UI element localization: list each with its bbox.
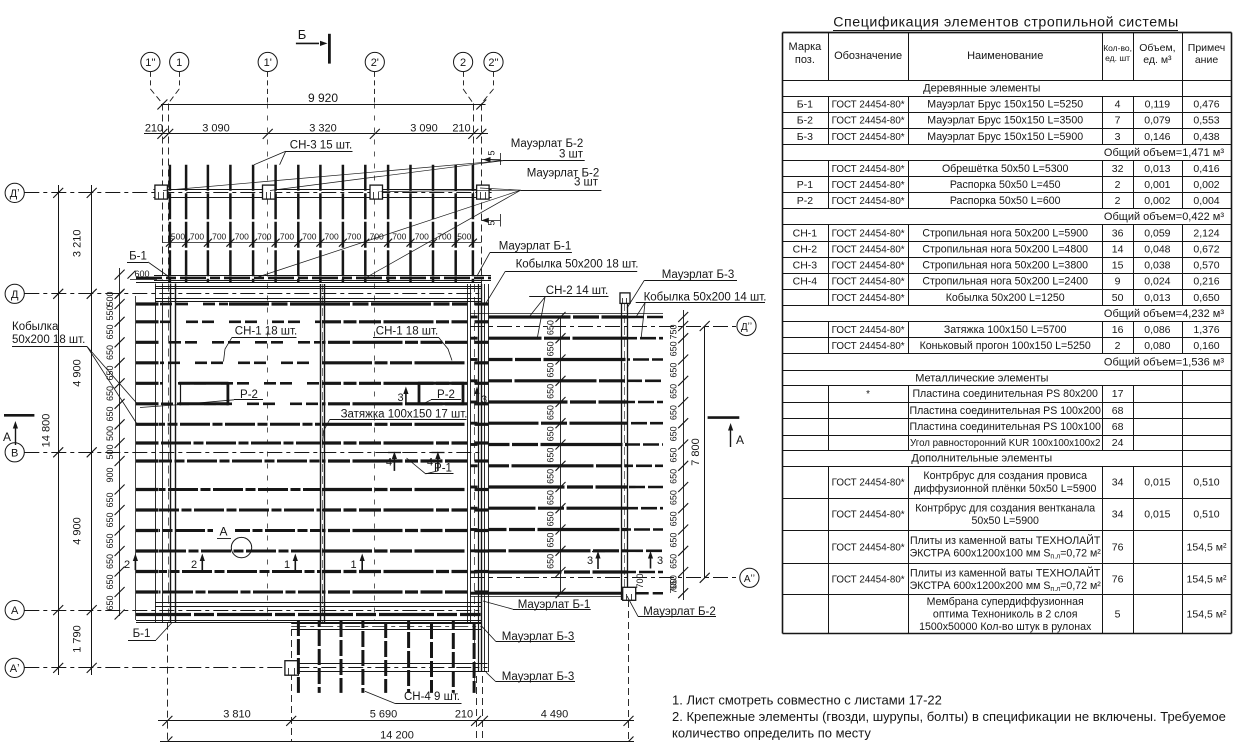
svg-text:Мауэрлат Брус 150x150 L=5250: Мауэрлат Брус 150x150 L=5250: [927, 99, 1083, 111]
svg-text:Примеч: Примеч: [1188, 42, 1225, 54]
svg-text:3: 3: [657, 555, 663, 567]
svg-text:Контрбрус для создания провиса: Контрбрус для создания провиса: [923, 470, 1087, 482]
svg-text:2: 2: [191, 559, 197, 571]
svg-text:Дʼ: Дʼ: [10, 188, 20, 200]
svg-text:700: 700: [347, 232, 361, 242]
svg-text:ГОСТ 24454-80*: ГОСТ 24454-80*: [832, 341, 905, 352]
svg-text:0,013: 0,013: [1144, 292, 1170, 304]
svg-text:650: 650: [105, 533, 115, 548]
svg-text:Р-1: Р-1: [797, 179, 814, 191]
svg-text:А: А: [3, 430, 11, 444]
svg-text:0,416: 0,416: [1193, 163, 1219, 175]
svg-text:0,146: 0,146: [1144, 131, 1170, 143]
svg-text:Кол-во,: Кол-во,: [1103, 43, 1132, 53]
svg-text:650: 650: [669, 448, 679, 463]
svg-text:154,5 м²: 154,5 м²: [1187, 541, 1227, 553]
svg-text:9: 9: [1115, 276, 1121, 288]
svg-text:650: 650: [669, 469, 679, 484]
svg-text:Аʼ: Аʼ: [10, 663, 20, 675]
svg-text:210: 210: [455, 709, 473, 721]
svg-text:Мауэрлат Б-3: Мауэрлат Б-3: [662, 269, 735, 281]
svg-text:Обозначение: Обозначение: [834, 50, 902, 62]
svg-text:ГОСТ 24454-80*: ГОСТ 24454-80*: [832, 245, 905, 256]
svg-text:3 090: 3 090: [202, 123, 230, 135]
svg-text:0,476: 0,476: [1193, 99, 1219, 111]
svg-text:Пластина соединительная PS 100: Пластина соединительная PS 100x200: [909, 405, 1100, 417]
svg-text:650: 650: [105, 345, 115, 360]
svg-text:Р-2: Р-2: [437, 389, 455, 401]
svg-text:0,216: 0,216: [1193, 276, 1219, 288]
svg-text:СН-1: СН-1: [793, 227, 818, 239]
svg-text:14: 14: [1112, 244, 1124, 256]
svg-text:А: А: [11, 605, 19, 617]
svg-text:1: 1: [176, 57, 182, 69]
svg-text:154,5 м²: 154,5 м²: [1187, 608, 1227, 620]
svg-text:Мембрана супердиффузионная: Мембрана супердиффузионная: [927, 596, 1084, 608]
svg-text:СН-2: СН-2: [793, 244, 818, 256]
svg-text:2. Крепежные элементы (гвозди,: 2. Крепежные элементы (гвозди, шурупы, б…: [672, 709, 1226, 724]
svg-text:650: 650: [105, 512, 115, 527]
svg-text:700: 700: [190, 232, 204, 242]
svg-text:3 810: 3 810: [223, 709, 251, 721]
svg-text:750: 750: [669, 324, 679, 339]
svg-text:700: 700: [257, 232, 271, 242]
svg-text:650: 650: [669, 511, 679, 526]
svg-text:Стропильная нога 50x200 L=4800: Стропильная нога 50x200 L=4800: [922, 244, 1088, 256]
svg-text:700: 700: [325, 232, 339, 242]
svg-text:650: 650: [546, 533, 556, 548]
svg-text:Марка: Марка: [789, 41, 823, 53]
svg-text:2': 2': [371, 57, 379, 69]
svg-text:ГОСТ 24454-80*: ГОСТ 24454-80*: [832, 132, 905, 143]
svg-text:2: 2: [1115, 195, 1121, 207]
svg-text:Коньковый прогон 100x150 L=525: Коньковый прогон 100x150 L=5250: [920, 340, 1091, 352]
svg-text:0,004: 0,004: [1193, 195, 1219, 207]
svg-text:650: 650: [546, 448, 556, 463]
svg-text:3 шт: 3 шт: [574, 177, 599, 189]
svg-text:5: 5: [1115, 608, 1121, 620]
svg-text:0,015: 0,015: [1144, 509, 1170, 521]
svg-text:Общий объем=1,536 м³: Общий объем=1,536 м³: [1104, 357, 1224, 369]
svg-text:3: 3: [1115, 131, 1121, 143]
svg-text:1'': 1'': [145, 57, 155, 69]
svg-text:Деревянные элементы: Деревянные элементы: [923, 82, 1040, 94]
svg-text:5 690: 5 690: [370, 709, 398, 721]
svg-text:3: 3: [481, 394, 487, 406]
svg-text:А: А: [219, 525, 227, 539]
svg-text:50x50 L=5900: 50x50 L=5900: [971, 515, 1039, 527]
svg-text:0,672: 0,672: [1193, 244, 1219, 256]
svg-text:15: 15: [1112, 260, 1124, 272]
svg-text:34: 34: [1112, 477, 1124, 489]
svg-text:2: 2: [1115, 340, 1121, 352]
svg-text:650: 650: [669, 426, 679, 441]
svg-text:1: 1: [284, 559, 290, 571]
svg-text:1': 1': [264, 57, 272, 69]
svg-text:1500x50000 Кол-во штук в рулон: 1500x50000 Кол-во штук в рулонах: [919, 621, 1092, 633]
svg-text:Объем,: Объем,: [1139, 42, 1175, 54]
svg-text:50x200 18 шт.: 50x200 18 шт.: [12, 334, 85, 346]
svg-text:Б-1: Б-1: [129, 251, 147, 263]
svg-text:1,376: 1,376: [1193, 324, 1219, 336]
svg-text:4 900: 4 900: [72, 517, 84, 545]
svg-text:СН-4: СН-4: [793, 276, 818, 288]
svg-text:700: 700: [635, 573, 645, 588]
svg-text:4: 4: [1115, 99, 1121, 111]
svg-text:14 200: 14 200: [380, 730, 414, 742]
svg-text:600: 600: [134, 269, 149, 279]
svg-text:0,510: 0,510: [1193, 509, 1219, 521]
svg-text:СН-3: СН-3: [793, 260, 818, 272]
svg-text:ГОСТ 24454-80*: ГОСТ 24454-80*: [832, 293, 905, 304]
svg-text:0,080: 0,080: [1144, 340, 1170, 352]
svg-text:700: 700: [370, 232, 384, 242]
svg-text:650: 650: [546, 554, 556, 569]
svg-text:Кобылка: Кобылка: [12, 321, 59, 333]
svg-text:Общий объем=0,422 м³: Общий объем=0,422 м³: [1104, 211, 1224, 223]
svg-text:4: 4: [386, 457, 392, 469]
svg-text:Контрбрус для создания венткан: Контрбрус для создания вентканала: [915, 502, 1095, 514]
svg-text:Кобылка 50x200 14 шт.: Кобылка 50x200 14 шт.: [644, 291, 767, 303]
svg-text:650: 650: [669, 490, 679, 505]
svg-text:Спецификация элементов стропил: Спецификация элементов стропильной систе…: [833, 15, 1178, 31]
svg-text:900: 900: [105, 467, 115, 482]
svg-text:0,038: 0,038: [1144, 260, 1170, 272]
svg-text:ГОСТ 24454-80*: ГОСТ 24454-80*: [832, 277, 905, 288]
svg-text:Плиты из каменной ваты ТЕХНОЛА: Плиты из каменной ваты ТЕХНОЛАЙТ: [910, 566, 1101, 579]
svg-text:ГОСТ 24454-80*: ГОСТ 24454-80*: [832, 100, 905, 111]
svg-text:Стропильная нога 50x200 L=5900: Стропильная нога 50x200 L=5900: [922, 227, 1088, 239]
svg-text:Стропильная нога 50x200 L=2400: Стропильная нога 50x200 L=2400: [922, 276, 1088, 288]
svg-text:Угол равносторонний KUR 100x10: Угол равносторонний KUR 100x100x100x2: [910, 438, 1100, 449]
svg-text:16: 16: [1112, 324, 1124, 336]
svg-text:А: А: [736, 433, 744, 447]
svg-text:68: 68: [1112, 421, 1124, 433]
svg-text:ГОСТ 24454-80*: ГОСТ 24454-80*: [832, 164, 905, 175]
svg-text:0,015: 0,015: [1144, 477, 1170, 489]
svg-text:Кобылка 50x200 18 шт.: Кобылка 50x200 18 шт.: [516, 258, 639, 270]
svg-text:Б-2: Б-2: [797, 115, 813, 127]
svg-text:Р-1: Р-1: [434, 463, 452, 475]
svg-text:ГОСТ 24454-80*: ГОСТ 24454-80*: [832, 478, 905, 489]
svg-text:5: 5: [487, 150, 497, 155]
svg-text:650: 650: [546, 320, 556, 335]
svg-text:СН-1 18 шт.: СН-1 18 шт.: [235, 326, 297, 338]
svg-text:650: 650: [546, 363, 556, 378]
svg-text:Мауэрлат Брус 150x150 L=5900: Мауэрлат Брус 150x150 L=5900: [927, 131, 1083, 143]
svg-text:7 800: 7 800: [690, 438, 702, 466]
svg-text:650: 650: [669, 405, 679, 420]
svg-text:0,001: 0,001: [1144, 179, 1170, 191]
svg-text:9 920: 9 920: [308, 91, 338, 105]
svg-text:0,048: 0,048: [1144, 244, 1170, 256]
svg-text:2: 2: [460, 57, 466, 69]
svg-text:3 090: 3 090: [410, 123, 438, 135]
svg-text:154,5 м²: 154,5 м²: [1187, 574, 1227, 586]
svg-text:Пластина соединительная PS 100: Пластина соединительная PS 100x100: [909, 421, 1100, 433]
svg-text:34: 34: [1112, 509, 1124, 521]
svg-text:Общий объем=4,232 м³: Общий объем=4,232 м³: [1104, 308, 1224, 320]
svg-text:ГОСТ 24454-80*: ГОСТ 24454-80*: [832, 575, 905, 586]
svg-text:700: 700: [235, 232, 249, 242]
svg-text:Дополнительные элементы: Дополнительные элементы: [911, 453, 1052, 465]
svg-text:76: 76: [1112, 574, 1124, 586]
svg-text:ГОСТ 24454-80*: ГОСТ 24454-80*: [832, 542, 905, 553]
svg-text:500: 500: [105, 426, 115, 441]
svg-text:650: 650: [105, 492, 115, 507]
svg-text:700: 700: [415, 232, 429, 242]
svg-text:650: 650: [546, 469, 556, 484]
svg-text:СН-2 14 шт.: СН-2 14 шт.: [546, 285, 608, 297]
svg-text:700: 700: [280, 232, 294, 242]
svg-text:ЭКСТРА 600x1200x100 мм Sп.л=0,: ЭКСТРА 600x1200x100 мм Sп.л=0,72 м²: [910, 548, 1102, 561]
svg-text:ГОСТ 24454-80*: ГОСТ 24454-80*: [832, 261, 905, 272]
svg-text:*: *: [866, 389, 870, 400]
svg-text:Кобылка 50x200 L=1250: Кобылка 50x200 L=1250: [946, 292, 1065, 304]
svg-text:Общий объем=1,471 м³: Общий объем=1,471 м³: [1104, 147, 1224, 159]
svg-text:36: 36: [1112, 227, 1124, 239]
svg-text:700: 700: [392, 232, 406, 242]
svg-text:Затяжка 100x150 L=5700: Затяжка 100x150 L=5700: [944, 324, 1067, 336]
svg-text:Д: Д: [11, 289, 19, 301]
svg-text:Наименование: Наименование: [967, 50, 1043, 62]
svg-text:ГОСТ 24454-80*: ГОСТ 24454-80*: [832, 196, 905, 207]
svg-text:ГОСТ 24454-80*: ГОСТ 24454-80*: [832, 180, 905, 191]
svg-text:0,013: 0,013: [1144, 163, 1170, 175]
svg-text:Обрешётка 50x50 L=5300: Обрешётка 50x50 L=5300: [942, 163, 1069, 175]
svg-text:0,079: 0,079: [1144, 115, 1170, 127]
svg-text:500: 500: [457, 232, 471, 242]
svg-text:4 490: 4 490: [541, 709, 569, 721]
svg-text:ЭКСТРА 600x1200x200 мм Sп.л=0,: ЭКСТРА 600x1200x200 мм Sп.л=0,72 м²: [910, 580, 1102, 593]
svg-text:ГОСТ 24454-80*: ГОСТ 24454-80*: [832, 116, 905, 127]
svg-text:650: 650: [105, 595, 115, 610]
svg-text:650: 650: [546, 511, 556, 526]
svg-text:ед. шт: ед. шт: [1105, 53, 1130, 63]
svg-text:0,086: 0,086: [1144, 324, 1170, 336]
svg-text:В: В: [11, 447, 18, 459]
svg-text:Б: Б: [298, 27, 307, 42]
svg-text:0,160: 0,160: [1193, 340, 1219, 352]
svg-text:550: 550: [105, 305, 115, 320]
svg-text:диффузионной плёнки 50x50 L=59: диффузионной плёнки 50x50 L=5900: [914, 483, 1097, 495]
svg-text:Мауэрлат Б-1: Мауэрлат Б-1: [499, 240, 572, 252]
svg-text:2: 2: [1115, 179, 1121, 191]
svg-text:32: 32: [1112, 163, 1124, 175]
svg-text:СН-1 18 шт.: СН-1 18 шт.: [376, 326, 438, 338]
svg-text:Аʼʼ: Аʼʼ: [744, 574, 755, 585]
svg-text:Распорка 50x50 L=600: Распорка 50x50 L=600: [950, 195, 1061, 207]
svg-text:Р-2: Р-2: [797, 195, 814, 207]
svg-text:210: 210: [145, 123, 163, 135]
svg-text:1 790: 1 790: [72, 625, 84, 653]
svg-text:650: 650: [669, 384, 679, 399]
svg-text:3 шт: 3 шт: [559, 148, 584, 160]
svg-text:0,553: 0,553: [1193, 115, 1219, 127]
svg-text:поз.: поз.: [795, 54, 815, 66]
svg-text:650: 650: [669, 341, 679, 356]
svg-text:Пластина соединительная PS 80x: Пластина соединительная PS 80x200: [912, 388, 1098, 400]
svg-text:Затяжка 100x150 17 шт.: Затяжка 100x150 17 шт.: [341, 409, 468, 421]
svg-text:0,570: 0,570: [1193, 260, 1219, 272]
svg-text:Распорка 50x50 L=450: Распорка 50x50 L=450: [950, 179, 1061, 191]
svg-text:3 320: 3 320: [309, 123, 337, 135]
svg-text:2'': 2'': [488, 57, 498, 69]
svg-text:14 800: 14 800: [41, 414, 53, 448]
svg-text:Плиты из каменной ваты ТЕХНОЛА: Плиты из каменной ваты ТЕХНОЛАЙТ: [910, 534, 1101, 547]
svg-text:500: 500: [171, 232, 185, 242]
svg-text:0,002: 0,002: [1193, 179, 1219, 191]
svg-text:Р-2: Р-2: [240, 389, 258, 401]
svg-text:оптима Технониколь в 2 слоя: оптима Технониколь в 2 слоя: [933, 608, 1078, 620]
svg-text:210: 210: [452, 123, 470, 135]
svg-text:3: 3: [397, 392, 403, 404]
svg-text:650: 650: [669, 554, 679, 569]
svg-text:Мауэрлат Брус 150x150 L=3500: Мауэрлат Брус 150x150 L=3500: [927, 115, 1083, 127]
svg-text:700: 700: [212, 232, 226, 242]
svg-text:700: 700: [669, 578, 679, 593]
svg-text:3 210: 3 210: [72, 230, 84, 258]
svg-text:0,002: 0,002: [1144, 195, 1170, 207]
svg-text:0,119: 0,119: [1145, 99, 1171, 111]
svg-text:0,059: 0,059: [1144, 227, 1170, 239]
svg-text:650: 650: [669, 533, 679, 548]
svg-text:1. Лист смотреть совместно с л: 1. Лист смотреть совместно с листами 17-…: [672, 693, 942, 708]
svg-text:0,024: 0,024: [1144, 276, 1170, 288]
svg-text:50: 50: [1112, 292, 1124, 304]
svg-text:СН-3 15 шт.: СН-3 15 шт.: [290, 140, 352, 152]
svg-text:Стропильная нога 50x200 L=3800: Стропильная нога 50x200 L=3800: [922, 260, 1088, 272]
svg-text:2,124: 2,124: [1193, 227, 1219, 239]
svg-text:24: 24: [1112, 437, 1124, 449]
svg-text:650: 650: [105, 554, 115, 569]
svg-text:ед. м³: ед. м³: [1143, 54, 1172, 66]
svg-text:2: 2: [124, 559, 130, 571]
svg-text:68: 68: [1112, 405, 1124, 417]
svg-text:500: 500: [105, 444, 115, 459]
svg-text:650: 650: [105, 324, 115, 339]
svg-text:700: 700: [302, 232, 316, 242]
svg-text:Металлические элементы: Металлические элементы: [915, 372, 1048, 384]
svg-text:650: 650: [105, 574, 115, 589]
svg-text:0,438: 0,438: [1193, 131, 1219, 143]
svg-text:4: 4: [427, 457, 433, 469]
svg-text:ГОСТ 24454-80*: ГОСТ 24454-80*: [832, 325, 905, 336]
svg-text:СН-4 9 шт.: СН-4 9 шт.: [404, 691, 460, 703]
svg-text:7: 7: [1115, 115, 1121, 127]
svg-text:Дʼʼ: Дʼʼ: [741, 322, 752, 333]
svg-text:0,650: 0,650: [1193, 292, 1219, 304]
svg-text:650: 650: [546, 384, 556, 399]
svg-text:Б-1: Б-1: [133, 628, 151, 640]
svg-text:ГОСТ 24454-80*: ГОСТ 24454-80*: [832, 510, 905, 521]
svg-text:650: 650: [546, 490, 556, 505]
svg-text:650: 650: [546, 341, 556, 356]
svg-text:Б-3: Б-3: [797, 131, 813, 143]
svg-text:0,510: 0,510: [1193, 477, 1219, 489]
svg-text:650: 650: [546, 426, 556, 441]
svg-text:ГОСТ 24454-80*: ГОСТ 24454-80*: [832, 228, 905, 239]
svg-text:650: 650: [669, 363, 679, 378]
svg-text:3: 3: [587, 555, 593, 567]
svg-text:17: 17: [1112, 388, 1124, 400]
svg-text:4 900: 4 900: [72, 359, 84, 387]
svg-text:Б-1: Б-1: [797, 99, 813, 111]
svg-text:количество определить по месту: количество определить по месту: [672, 726, 871, 741]
svg-text:1: 1: [350, 559, 356, 571]
svg-text:650: 650: [105, 406, 115, 421]
svg-text:650: 650: [546, 405, 556, 420]
svg-text:76: 76: [1112, 541, 1124, 553]
svg-text:500: 500: [105, 291, 115, 306]
svg-text:ание: ание: [1195, 54, 1219, 66]
